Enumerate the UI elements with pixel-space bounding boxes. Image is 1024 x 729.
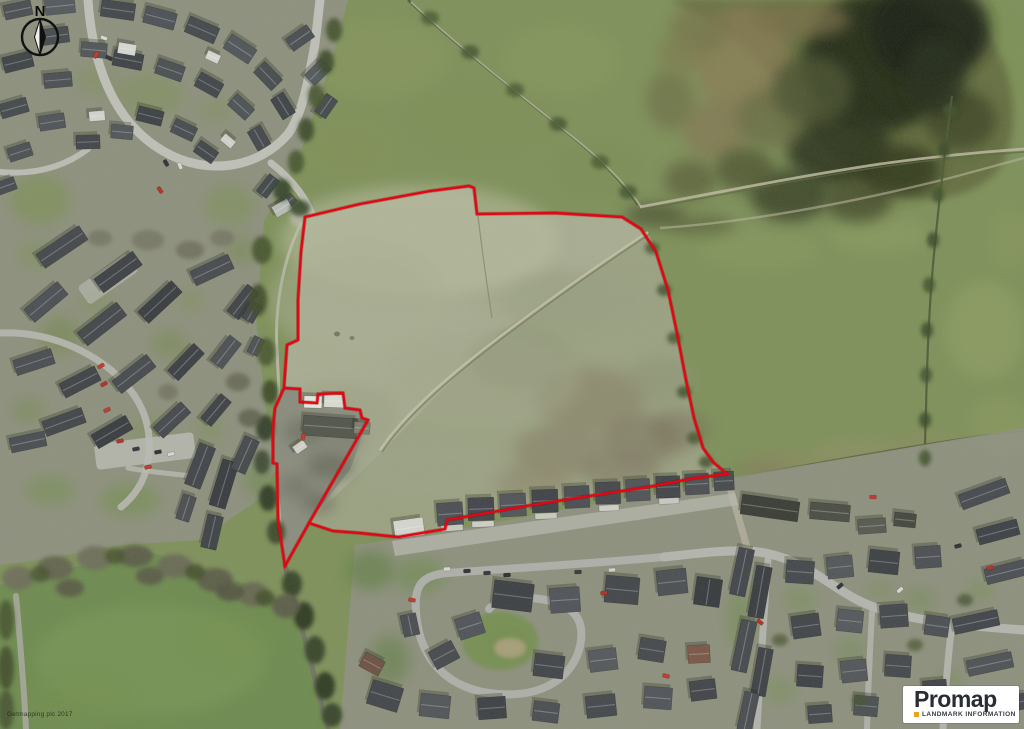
aerial-map[interactable]: N Promap LANDMARK INFORMATION Getmapping… — [0, 0, 1024, 729]
compass-rose: N — [0, 0, 80, 80]
landmark-bullet-icon — [914, 712, 919, 717]
aerial-imagery — [0, 0, 1024, 729]
promap-logo-subtitle: LANDMARK INFORMATION — [922, 711, 1016, 718]
photo-grain-overlay — [0, 0, 1024, 729]
promap-logo-title: Promap — [914, 687, 1019, 711]
copyright-text: Getmapping plc 2017 — [7, 711, 73, 718]
compass-needle-east — [40, 19, 46, 55]
compass-needle-west — [35, 19, 41, 55]
north-label: N — [35, 3, 46, 20]
promap-logo: Promap LANDMARK INFORMATION — [903, 686, 1019, 723]
